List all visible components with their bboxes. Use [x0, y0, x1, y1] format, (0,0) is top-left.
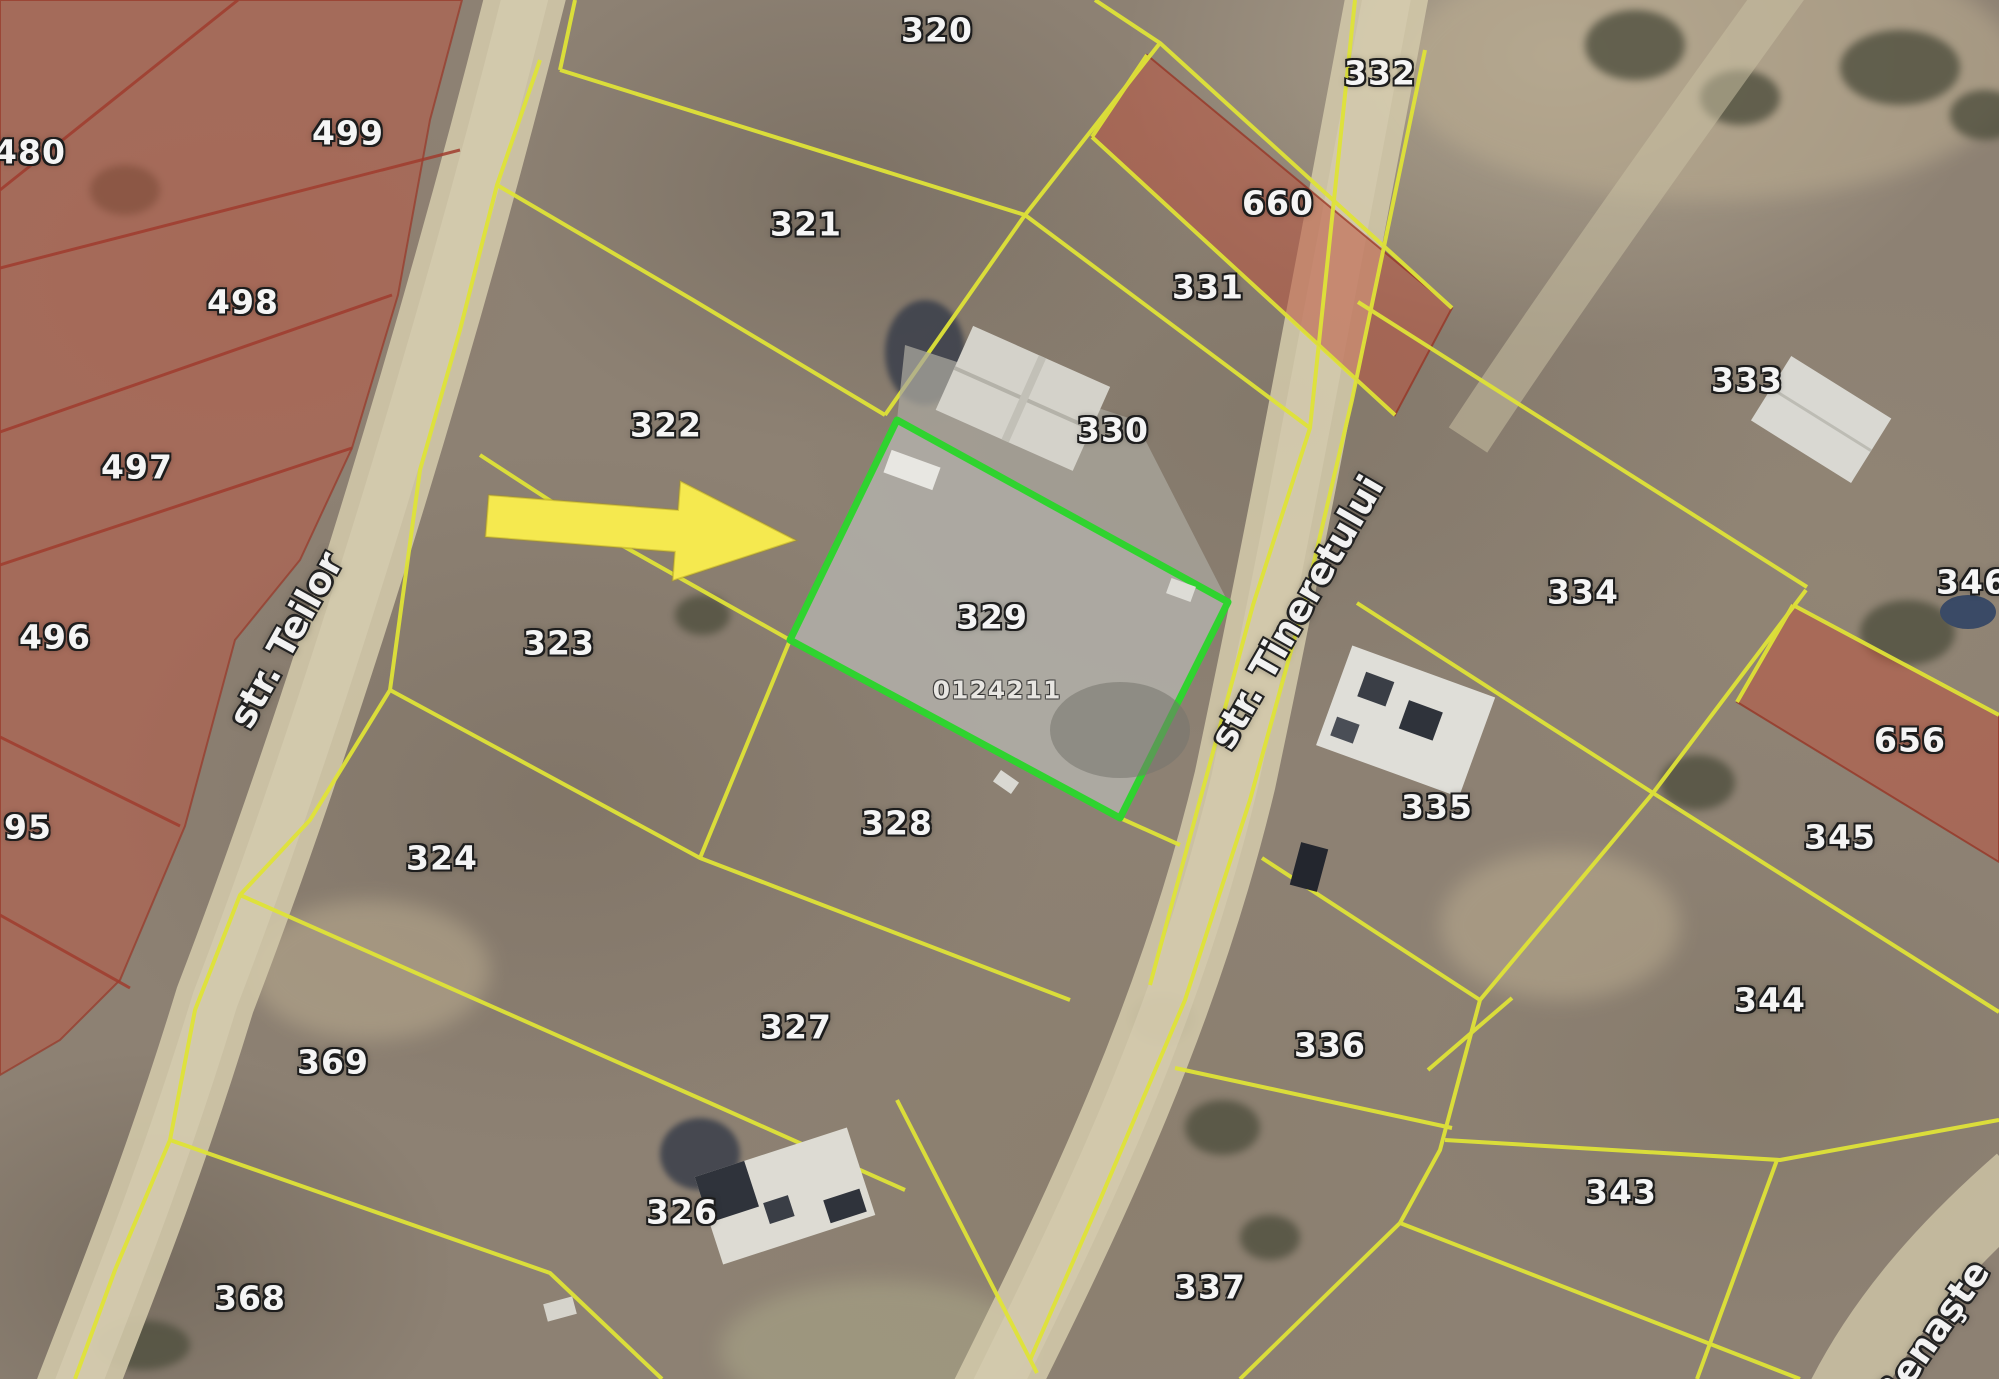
map-canvas[interactable]: 4804994984974969532032132232332436936832…	[0, 0, 1999, 1379]
parcel-label-346[interactable]: 346	[1936, 563, 1999, 602]
object-white	[993, 770, 1019, 794]
parcel-label-498[interactable]: 498	[207, 283, 279, 322]
cadastral-code-label: 0124211	[933, 676, 1062, 705]
parcel-label-480[interactable]: 480	[0, 133, 66, 172]
parcel-label-334[interactable]: 334	[1547, 573, 1619, 612]
parcel-label-327[interactable]: 327	[760, 1008, 832, 1047]
parcel-label-321[interactable]: 321	[770, 205, 842, 244]
parcel-label-499[interactable]: 499	[312, 114, 384, 153]
parcel-label-322[interactable]: 322	[630, 406, 702, 445]
parcel-label-369[interactable]: 369	[297, 1043, 369, 1082]
parcel-label-323[interactable]: 323	[523, 624, 595, 663]
parcel-label-497[interactable]: 497	[101, 448, 173, 487]
pointer-arrow	[483, 466, 800, 590]
parcel-label-324[interactable]: 324	[406, 839, 478, 878]
parcel-label-660[interactable]: 660	[1242, 184, 1314, 223]
parcel-label-337[interactable]: 337	[1174, 1268, 1246, 1307]
object-white	[543, 1296, 577, 1321]
gravel-dark-patch	[1050, 682, 1190, 778]
parcel-label-320[interactable]: 320	[901, 11, 973, 50]
parcel-label-335[interactable]: 335	[1401, 788, 1473, 827]
parcel-label-496[interactable]: 496	[19, 618, 91, 657]
parcel-label-95[interactable]: 95	[4, 808, 52, 847]
parcel-label-336[interactable]: 336	[1294, 1026, 1366, 1065]
parcel-label-329[interactable]: 329	[956, 598, 1028, 637]
building-parcel-326	[695, 1128, 876, 1265]
parcel-label-656[interactable]: 656	[1874, 721, 1946, 760]
parcel-label-332[interactable]: 332	[1344, 54, 1416, 93]
building-parcel-335	[1316, 645, 1495, 797]
vehicle-dark	[1290, 842, 1328, 892]
parcel-label-331[interactable]: 331	[1172, 268, 1244, 307]
parcel-label-330[interactable]: 330	[1077, 411, 1149, 450]
parcel-label-328[interactable]: 328	[861, 804, 933, 843]
parcel-label-343[interactable]: 343	[1585, 1173, 1657, 1212]
parcel-label-333[interactable]: 333	[1711, 361, 1783, 400]
parcel-label-344[interactable]: 344	[1734, 981, 1806, 1020]
parcel-label-345[interactable]: 345	[1804, 818, 1876, 857]
parcel-label-368[interactable]: 368	[214, 1279, 286, 1318]
parcel-label-326[interactable]: 326	[646, 1193, 718, 1232]
